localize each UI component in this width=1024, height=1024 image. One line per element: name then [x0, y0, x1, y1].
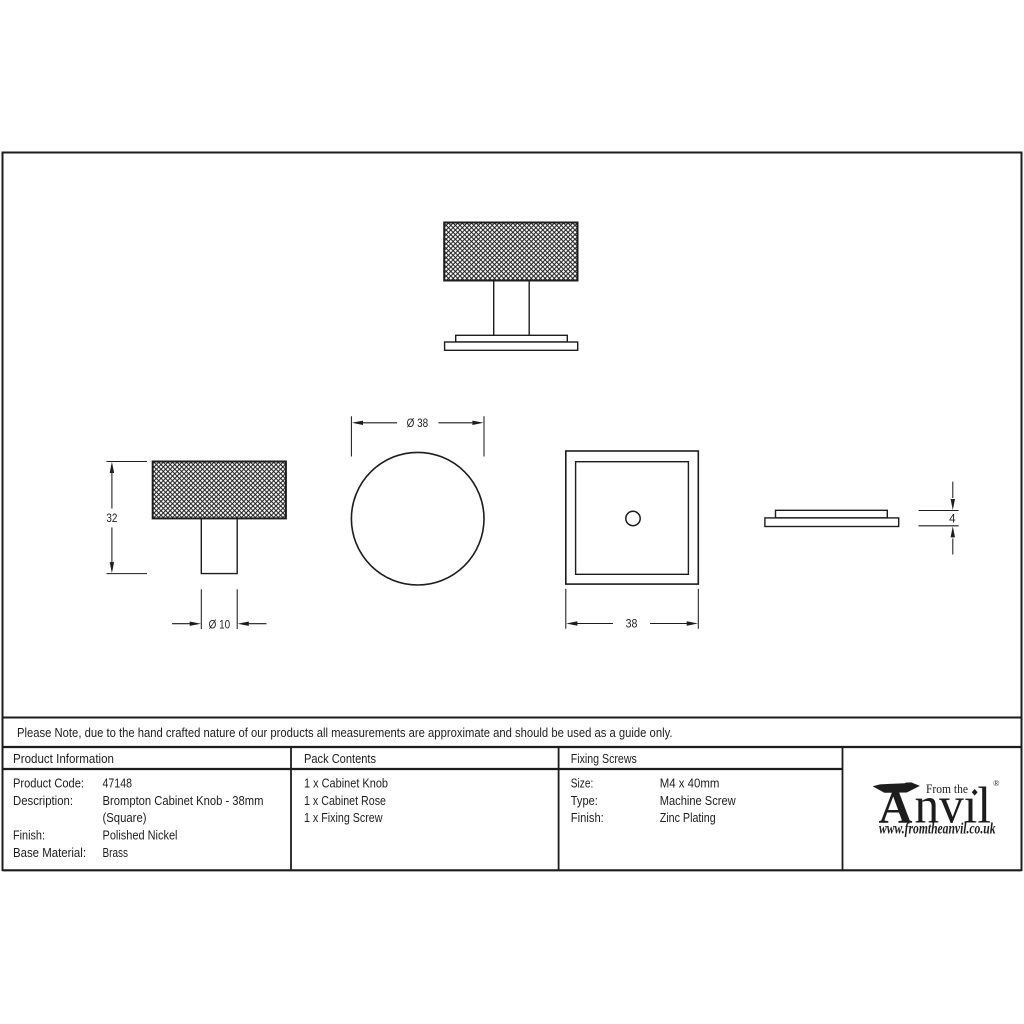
svg-text:(Square): (Square) [103, 810, 147, 825]
svg-text:Finish:: Finish: [13, 827, 45, 842]
svg-text:Product Code:: Product Code: [13, 775, 84, 790]
svg-text:Size:: Size: [571, 775, 594, 790]
svg-text:Finish:: Finish: [571, 810, 604, 825]
svg-text:Fixing Screws: Fixing Screws [571, 751, 637, 766]
svg-text:Base Material:: Base Material: [13, 845, 86, 860]
svg-text:Ø 10: Ø 10 [209, 620, 231, 632]
svg-text:1 x Cabinet Rose: 1 x Cabinet Rose [304, 793, 386, 808]
svg-text:M4 x 40mm: M4 x 40mm [660, 775, 720, 790]
svg-text:1 x Cabinet Knob: 1 x Cabinet Knob [304, 775, 388, 790]
svg-text:Brass: Brass [103, 845, 129, 860]
svg-text:32: 32 [106, 513, 117, 525]
svg-text:®: ® [993, 778, 1000, 788]
svg-text:Pack Contents: Pack Contents [304, 751, 376, 766]
svg-text:From the: From the [926, 782, 968, 796]
svg-text:www.fromtheanvil.co.uk: www.fromtheanvil.co.uk [879, 821, 996, 838]
svg-text:38: 38 [626, 619, 638, 631]
svg-text:Product Information: Product Information [13, 751, 114, 766]
svg-text:Ø 38: Ø 38 [407, 418, 429, 430]
svg-text:4: 4 [949, 513, 956, 525]
svg-text:Zinc Plating: Zinc Plating [660, 810, 716, 825]
svg-text:Machine Screw: Machine Screw [660, 793, 737, 808]
svg-text:Description:: Description: [13, 793, 73, 808]
svg-text:47148: 47148 [103, 775, 133, 790]
svg-text:Please Note, due to the hand c: Please Note, due to the hand crafted nat… [17, 725, 673, 740]
svg-text:Polished Nickel: Polished Nickel [103, 827, 178, 842]
svg-text:1 x Fixing Screw: 1 x Fixing Screw [304, 810, 383, 825]
svg-text:Type:: Type: [571, 793, 598, 808]
svg-text:Brompton Cabinet Knob - 38mm: Brompton Cabinet Knob - 38mm [103, 793, 264, 808]
